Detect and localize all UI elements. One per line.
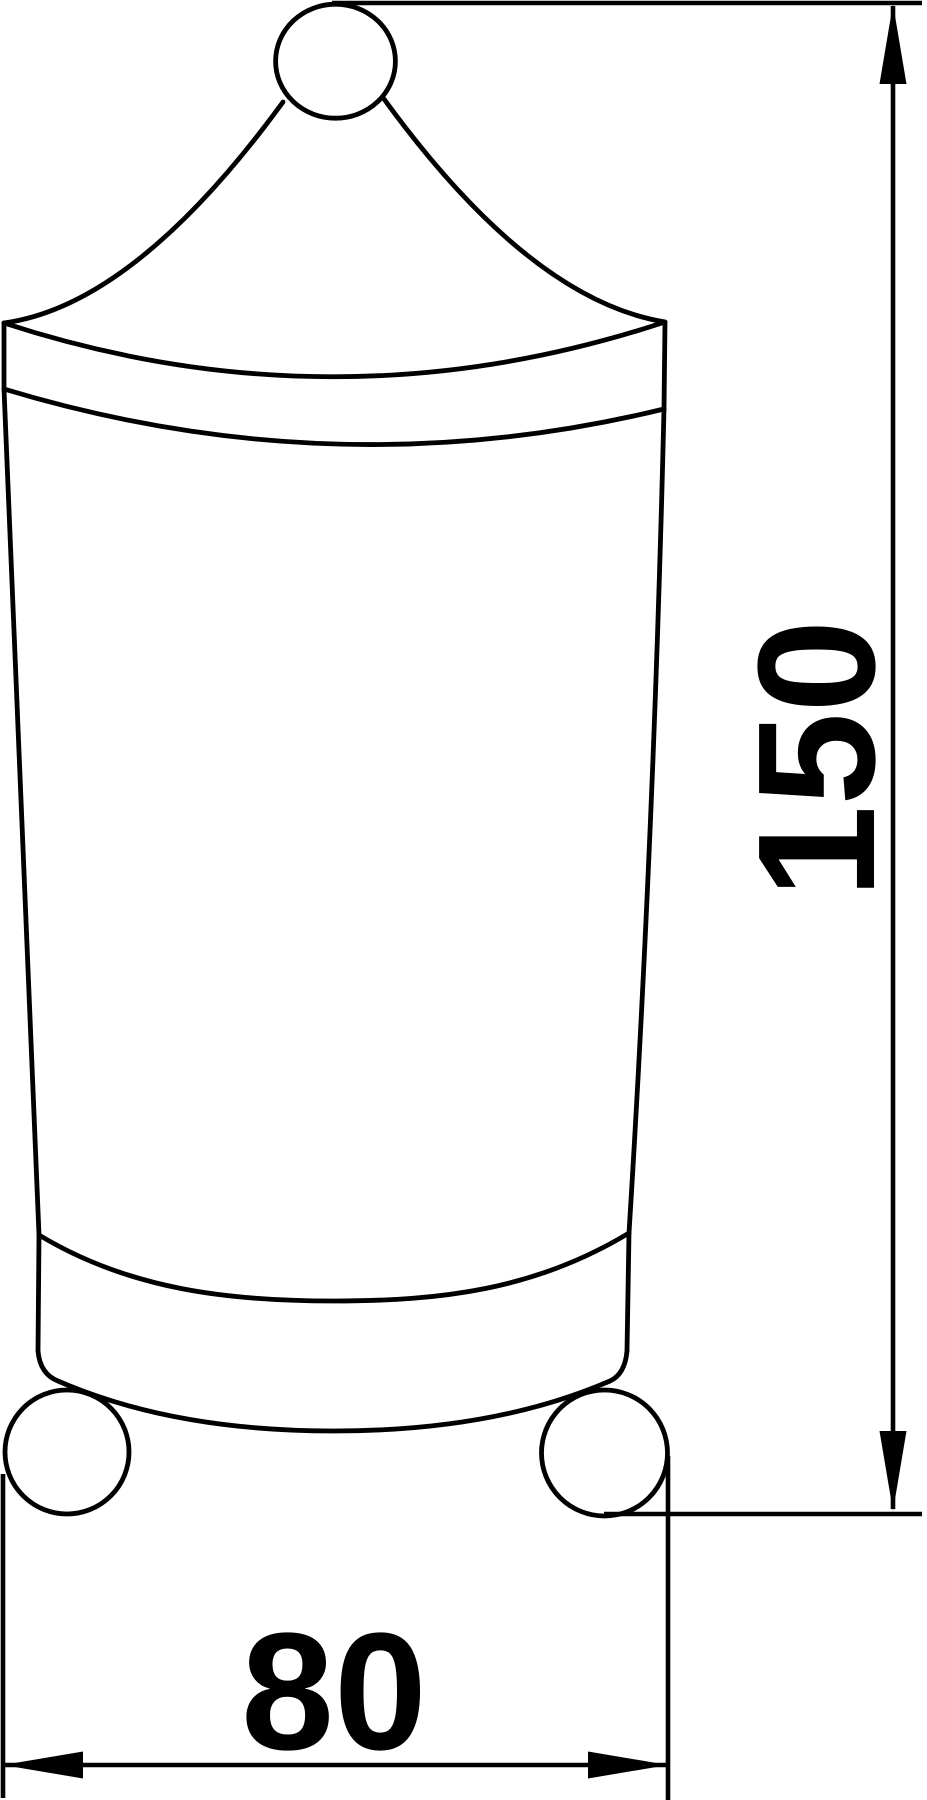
svg-text:80: 80 — [241, 1599, 427, 1785]
svg-text:150: 150 — [724, 620, 910, 899]
